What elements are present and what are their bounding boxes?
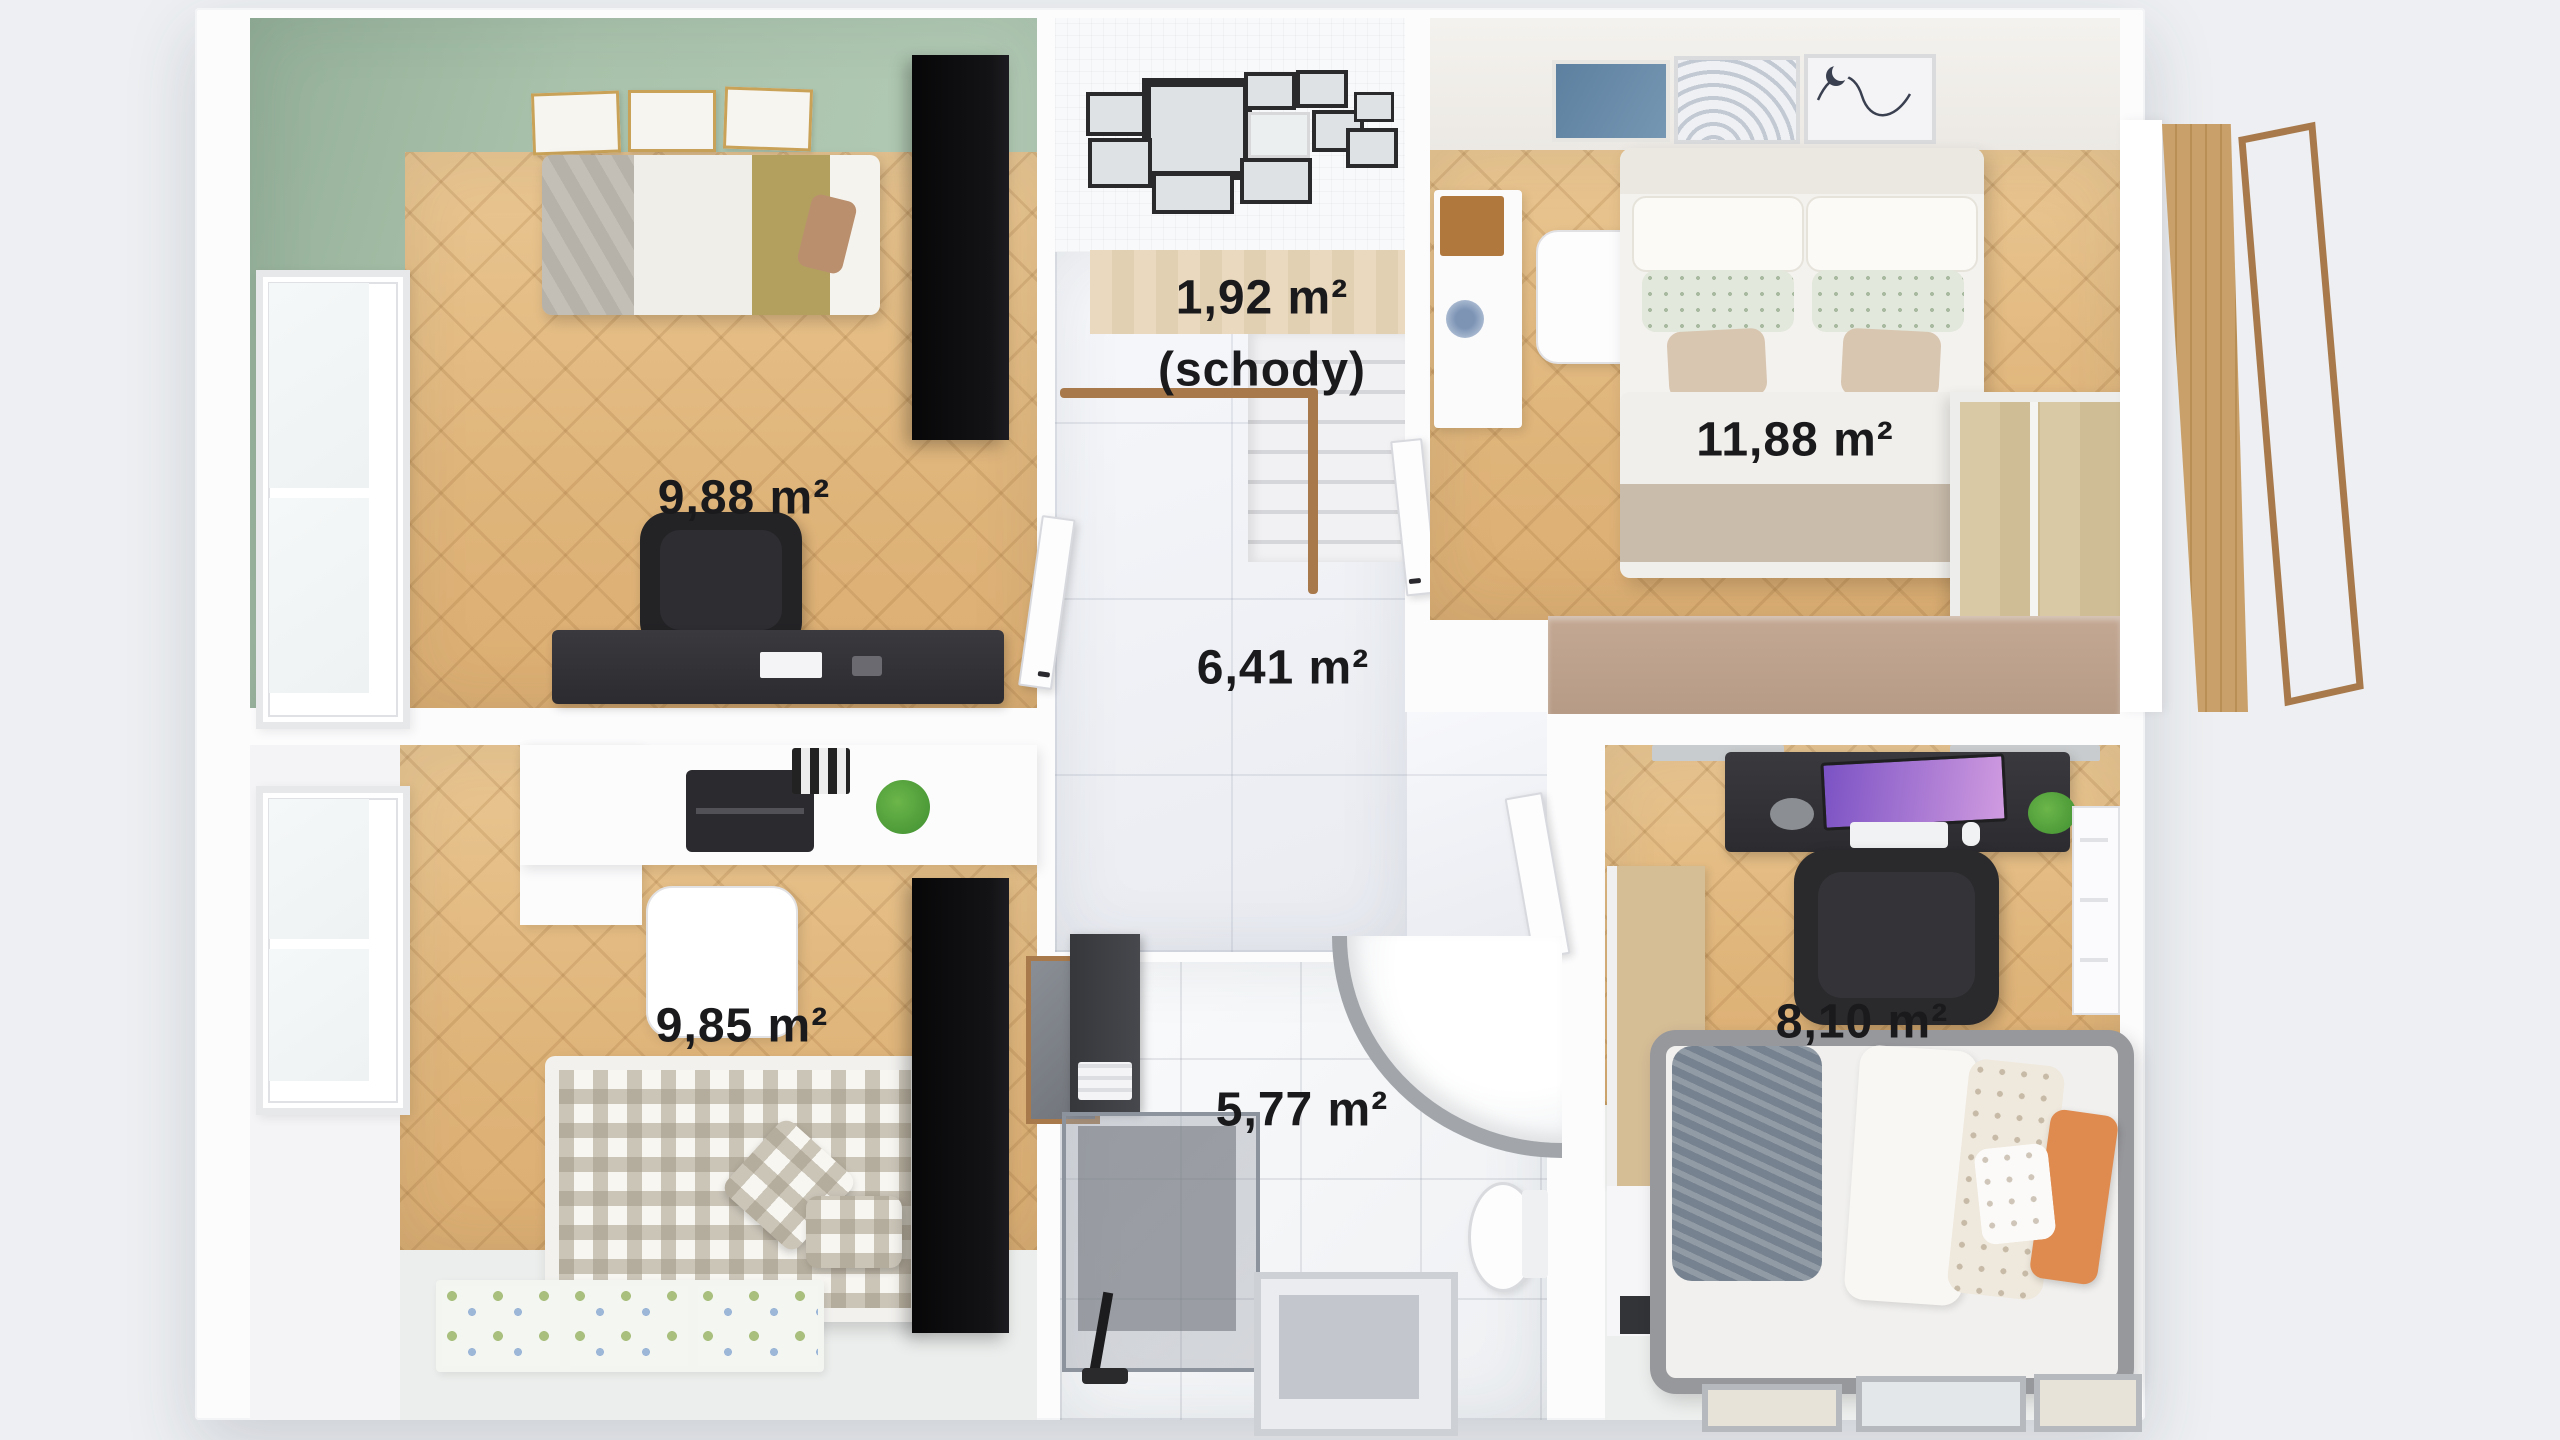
vanity-table <box>1434 190 1522 428</box>
decor-stone <box>1770 798 1814 830</box>
balcony-floor <box>2162 124 2248 712</box>
area-label-children-room-1: 9,88 m² <box>658 471 830 526</box>
desk <box>552 630 1004 704</box>
floor-frame <box>2034 1374 2142 1432</box>
picture-frame <box>1296 70 1348 108</box>
low-dresser <box>1548 616 2120 714</box>
desk-object <box>792 748 850 794</box>
picture-frame <box>1086 92 1146 136</box>
picture-frame <box>1248 112 1310 158</box>
single-bed <box>542 155 880 315</box>
shower-tray <box>1254 1272 1458 1436</box>
picture-frame <box>1088 138 1152 188</box>
pillow <box>1973 1142 2057 1245</box>
knit-blanket <box>1672 1046 1822 1281</box>
area-label-office-room: 8,10 m² <box>1776 995 1948 1050</box>
balcony-opening <box>2120 120 2162 712</box>
window <box>256 786 410 1115</box>
artwork-blue <box>1552 60 1670 142</box>
rug <box>436 1280 824 1372</box>
picture-frame <box>1142 78 1252 180</box>
plant <box>2028 792 2076 834</box>
area-label-bedroom: 11,88 m² <box>1696 413 1893 468</box>
picture-frame <box>531 90 621 155</box>
area-label-children-room-2: 9,85 m² <box>656 999 828 1054</box>
picture-frame <box>1244 72 1296 110</box>
sliding-wardrobe <box>1950 392 2140 650</box>
picture-frame <box>1354 92 1394 122</box>
area-sublabel-staircase: (schody) <box>1158 343 1366 398</box>
artwork-line-art <box>1804 54 1936 144</box>
keyboard <box>1850 822 1948 848</box>
floor-plan: 9,88 m² 1,92 m² (schody) 6,41 m² <box>0 0 2560 1440</box>
pillow <box>806 1196 902 1268</box>
double-bed <box>1620 148 1984 578</box>
railing-frame <box>2242 126 2360 702</box>
radiator-sill <box>2072 806 2120 1015</box>
window <box>256 270 410 729</box>
picture-frame <box>1346 128 1398 168</box>
floor-frame <box>1856 1376 2026 1432</box>
area-label-bathroom: 5,77 m² <box>1216 1083 1388 1138</box>
area-label-staircase: 1,92 m² <box>1176 271 1348 326</box>
area-label-hallway: 6,41 m² <box>1197 641 1369 696</box>
picture-frame <box>723 86 813 151</box>
floor-frame <box>1702 1384 1842 1432</box>
monitor <box>1820 753 2007 831</box>
picture-frame <box>1152 172 1234 214</box>
wardrobe <box>912 55 1009 440</box>
bathroom-vanity <box>1070 934 1140 1112</box>
picture-frame <box>1240 158 1312 204</box>
plant <box>876 780 930 834</box>
wardrobe <box>912 878 1009 1333</box>
picture-frame <box>628 90 716 152</box>
mouse <box>1962 822 1980 846</box>
shower-enclosure <box>1062 1112 1260 1372</box>
artwork-swirl <box>1674 56 1800 144</box>
toilet-tank <box>1522 1190 1548 1278</box>
stair-handrail <box>1308 388 1318 594</box>
